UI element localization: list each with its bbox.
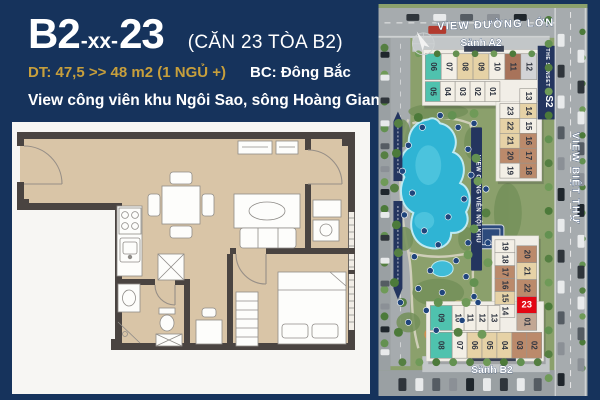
unit-cell-number: 08 <box>437 341 446 350</box>
car <box>558 342 565 355</box>
unit-code-sep: -xx- <box>81 30 118 54</box>
amenity-marker <box>465 240 471 246</box>
unit-cell-number: 09 <box>437 313 446 322</box>
park-view-ribbon: VIEW CÔNG VIÊN NỘI KHU <box>471 127 482 270</box>
car <box>500 378 508 391</box>
tree <box>545 279 553 287</box>
amenity-marker <box>485 240 491 246</box>
amenity-marker <box>459 317 465 323</box>
amenity-marker <box>455 124 461 130</box>
unit-cell-number: 17 <box>524 151 533 160</box>
car <box>381 166 390 172</box>
street-direction-ribbons <box>393 111 402 299</box>
car <box>578 50 585 63</box>
car <box>534 378 542 391</box>
amenity-marker <box>401 212 407 218</box>
car <box>432 378 440 391</box>
tree <box>448 111 457 120</box>
chair <box>170 172 192 184</box>
amenity-marker <box>433 327 439 333</box>
car <box>558 250 565 263</box>
unit-cell-number: 12 <box>524 62 533 71</box>
car <box>406 14 419 21</box>
tree <box>491 50 498 57</box>
tree <box>509 50 516 57</box>
tree <box>545 40 553 48</box>
unit-cell-number: 21 <box>522 267 531 276</box>
tree <box>579 313 585 319</box>
amenity-marker <box>471 293 477 299</box>
car <box>578 358 585 371</box>
tree <box>474 177 483 186</box>
car <box>381 189 390 195</box>
amenity-marker <box>465 146 471 152</box>
unit-cell-number: 17 <box>500 268 509 277</box>
right-road-label: VIEW BIỆT THỰ <box>570 132 583 224</box>
unit-cell-number: 05 <box>485 341 494 350</box>
tree <box>394 328 403 337</box>
unit-cell-number: 13 <box>524 92 533 101</box>
amenity-marker <box>453 258 459 264</box>
tree <box>453 50 460 57</box>
unit-cell-number: 20 <box>505 151 514 160</box>
car <box>558 65 565 78</box>
car <box>578 111 585 124</box>
car <box>578 297 585 310</box>
unit-cell-number: 23 <box>505 107 514 116</box>
direction-label: BC: Đông Bắc <box>250 64 351 81</box>
amenity-marker <box>419 124 425 130</box>
tree <box>434 298 443 307</box>
tree <box>545 374 553 382</box>
unit-cell-number: 13 <box>489 313 498 322</box>
unit-cell-number: 01 <box>488 87 497 96</box>
unit-cell-number: 22 <box>505 121 514 130</box>
unit-cell-number: 18 <box>500 255 509 264</box>
amenity-marker <box>483 186 489 192</box>
unit-code-main: B2 <box>28 12 80 56</box>
tree <box>545 231 553 239</box>
amenity-marker <box>437 112 443 118</box>
lobby-a2-label: Sảnh A2 <box>460 38 502 49</box>
tree <box>394 248 403 257</box>
floor-plan-card <box>12 122 370 394</box>
tree <box>545 350 553 358</box>
unit-cell-number: 22 <box>522 284 531 293</box>
car <box>381 326 390 332</box>
tree <box>545 88 553 96</box>
amenity-marker <box>411 254 417 260</box>
tree <box>381 178 389 186</box>
car <box>381 349 390 355</box>
tree <box>464 250 473 259</box>
sofa <box>240 228 296 248</box>
car <box>381 98 390 104</box>
amenity-marker <box>423 307 429 313</box>
site-map-canvas: VIEW CÔNG VIÊN NỘI KHU THE SUNSET S2 <box>378 4 588 396</box>
amenity-marker <box>397 299 403 305</box>
car <box>415 378 423 391</box>
tree <box>545 326 553 334</box>
tree <box>390 184 399 193</box>
tree <box>528 50 535 57</box>
amenity-marker <box>471 120 477 126</box>
tree <box>381 205 389 213</box>
car <box>381 258 390 264</box>
car <box>381 75 390 81</box>
tree <box>449 358 457 366</box>
car <box>558 188 565 201</box>
unit-cell-number: 02 <box>473 87 482 96</box>
tree <box>390 278 399 287</box>
unit-cell-number: 15 <box>500 294 509 303</box>
tree <box>381 312 389 320</box>
car <box>381 52 390 58</box>
toilet-tank <box>159 308 175 314</box>
car <box>381 143 390 149</box>
unit-cell-number: 01 <box>522 317 531 326</box>
dresser <box>196 320 222 344</box>
tree <box>462 298 471 307</box>
amenity-marker <box>427 268 433 274</box>
tree <box>545 302 553 310</box>
vanity <box>118 284 140 312</box>
header: B2-xx-23 (CĂN 23 TÒA B2) <box>28 12 373 56</box>
tree <box>545 159 553 167</box>
stove <box>119 208 141 234</box>
amenity-marker <box>463 274 469 280</box>
tree <box>579 29 585 35</box>
tree <box>517 358 525 366</box>
car <box>558 96 565 109</box>
washer <box>313 220 339 241</box>
chair <box>170 226 192 238</box>
car <box>558 219 565 232</box>
car <box>578 81 585 94</box>
tree <box>381 151 389 159</box>
tree <box>392 149 401 158</box>
ac-unit <box>238 141 272 154</box>
tree <box>545 64 553 72</box>
unit-cell-number: 09 <box>477 62 486 71</box>
amenity-marker <box>415 285 421 291</box>
tree <box>414 113 423 122</box>
amenity-marker <box>475 299 481 305</box>
unit-specs-line: DT: 47,5 >> 48 m2 (1 NGỦ +)BC: Đông Bắc <box>28 64 351 81</box>
tree <box>381 339 389 347</box>
unit-cell-number: 23 <box>522 299 533 310</box>
tree <box>394 119 403 128</box>
tree <box>381 286 389 294</box>
amenity-marker <box>468 172 474 178</box>
car <box>381 235 390 241</box>
balcony-shelf <box>313 200 341 217</box>
unit-cell-number: 14 <box>500 307 509 316</box>
tree <box>478 330 487 339</box>
unit-cell-number: 08 <box>461 62 470 71</box>
car <box>578 235 585 248</box>
s2-band-code: S2 <box>543 95 554 108</box>
unit-cell-number: 11 <box>466 314 475 323</box>
unit-code-suffix: (CĂN 23 TÒA B2) <box>188 32 343 54</box>
car <box>578 266 585 279</box>
amenity-marker <box>435 242 441 248</box>
lobby-b2-label: Sảnh B2 <box>471 365 513 376</box>
car <box>558 311 565 324</box>
unit-cell-number: 05 <box>428 87 437 96</box>
car <box>381 120 390 126</box>
car <box>483 378 491 391</box>
unit-cell-number: 18 <box>524 166 533 175</box>
unit-cell-number: 06 <box>470 341 479 350</box>
pillow <box>312 324 338 338</box>
unit-cell-number: 16 <box>500 281 509 290</box>
amenity-marker <box>421 228 427 234</box>
unit-cell-number: 11 <box>508 62 517 71</box>
tree <box>472 50 479 57</box>
unit-cell-number: 07 <box>445 62 454 71</box>
unit-cell-number: 20 <box>522 250 531 259</box>
unit-cell-number: 03 <box>515 341 524 350</box>
tree <box>470 109 479 118</box>
toilet <box>160 315 174 331</box>
tree <box>545 111 553 119</box>
tree <box>432 358 440 366</box>
unit-cell-number: 14 <box>524 107 533 116</box>
ac-unit <box>276 141 298 154</box>
amenity-marker <box>461 196 467 202</box>
amenity-marker <box>405 319 411 325</box>
car <box>558 373 565 386</box>
car <box>381 212 390 218</box>
tree <box>434 50 441 57</box>
amenity-marker <box>439 289 445 295</box>
car <box>558 34 565 47</box>
tree <box>381 44 389 52</box>
amenity-marker <box>399 168 405 174</box>
car <box>381 303 390 309</box>
tree <box>482 208 491 217</box>
tree <box>392 220 401 229</box>
unit-cell-number: 04 <box>443 87 452 96</box>
tree <box>545 255 553 263</box>
unit-cell-number: 21 <box>505 136 514 145</box>
tree <box>470 278 479 287</box>
unit-cell-number: 19 <box>500 242 509 251</box>
tree <box>545 183 553 191</box>
site-map: VIEW CÔNG VIÊN NỘI KHU THE SUNSET S2 <box>378 4 588 396</box>
amenity-marker <box>405 142 411 148</box>
car <box>558 126 565 139</box>
unit-cell-number: 10 <box>492 62 501 71</box>
car <box>578 327 585 340</box>
area-label: DT: 47,5 >> 48 m2 (1 NGỦ +) <box>28 64 226 81</box>
unit-cell-number: 16 <box>524 136 533 145</box>
pillow <box>282 324 308 338</box>
unit-cell-number: 06 <box>429 62 438 71</box>
unit-cell-number: 04 <box>500 341 509 350</box>
tree <box>454 328 463 337</box>
amenity-marker <box>409 190 415 196</box>
tv-console <box>234 194 300 228</box>
tree <box>545 207 553 215</box>
tree <box>579 287 585 293</box>
tree <box>545 135 553 143</box>
stool <box>202 308 216 317</box>
floor-plan <box>12 122 370 394</box>
unit-cell-number: 15 <box>524 121 533 130</box>
unit-title: B2-xx-23 (CĂN 23 TÒA B2) <box>28 12 373 56</box>
unit-cell-number: 02 <box>530 341 539 350</box>
chair <box>202 194 214 216</box>
dining-table <box>162 186 200 224</box>
car <box>398 378 406 391</box>
tree <box>534 358 542 366</box>
unit-cell-number: 07 <box>455 341 464 350</box>
car <box>517 378 525 391</box>
car <box>466 378 474 391</box>
view-label: View công viên khu Ngôi Sao, sông Hoàng … <box>28 92 389 110</box>
tree <box>470 224 479 233</box>
unit-code-number: 23 <box>119 12 164 56</box>
car <box>449 378 457 391</box>
tree <box>415 358 423 366</box>
car <box>558 281 565 294</box>
unit-cell-number: 19 <box>505 166 514 175</box>
car <box>558 157 565 170</box>
car <box>381 281 390 287</box>
tree <box>472 154 481 163</box>
unit-cell-number: 03 <box>458 87 467 96</box>
amenity-marker <box>445 214 451 220</box>
tree <box>483 258 492 267</box>
kids-pool <box>431 261 453 277</box>
tree <box>398 358 406 366</box>
unit-cell-number: 12 <box>478 313 487 322</box>
chair <box>148 194 160 216</box>
